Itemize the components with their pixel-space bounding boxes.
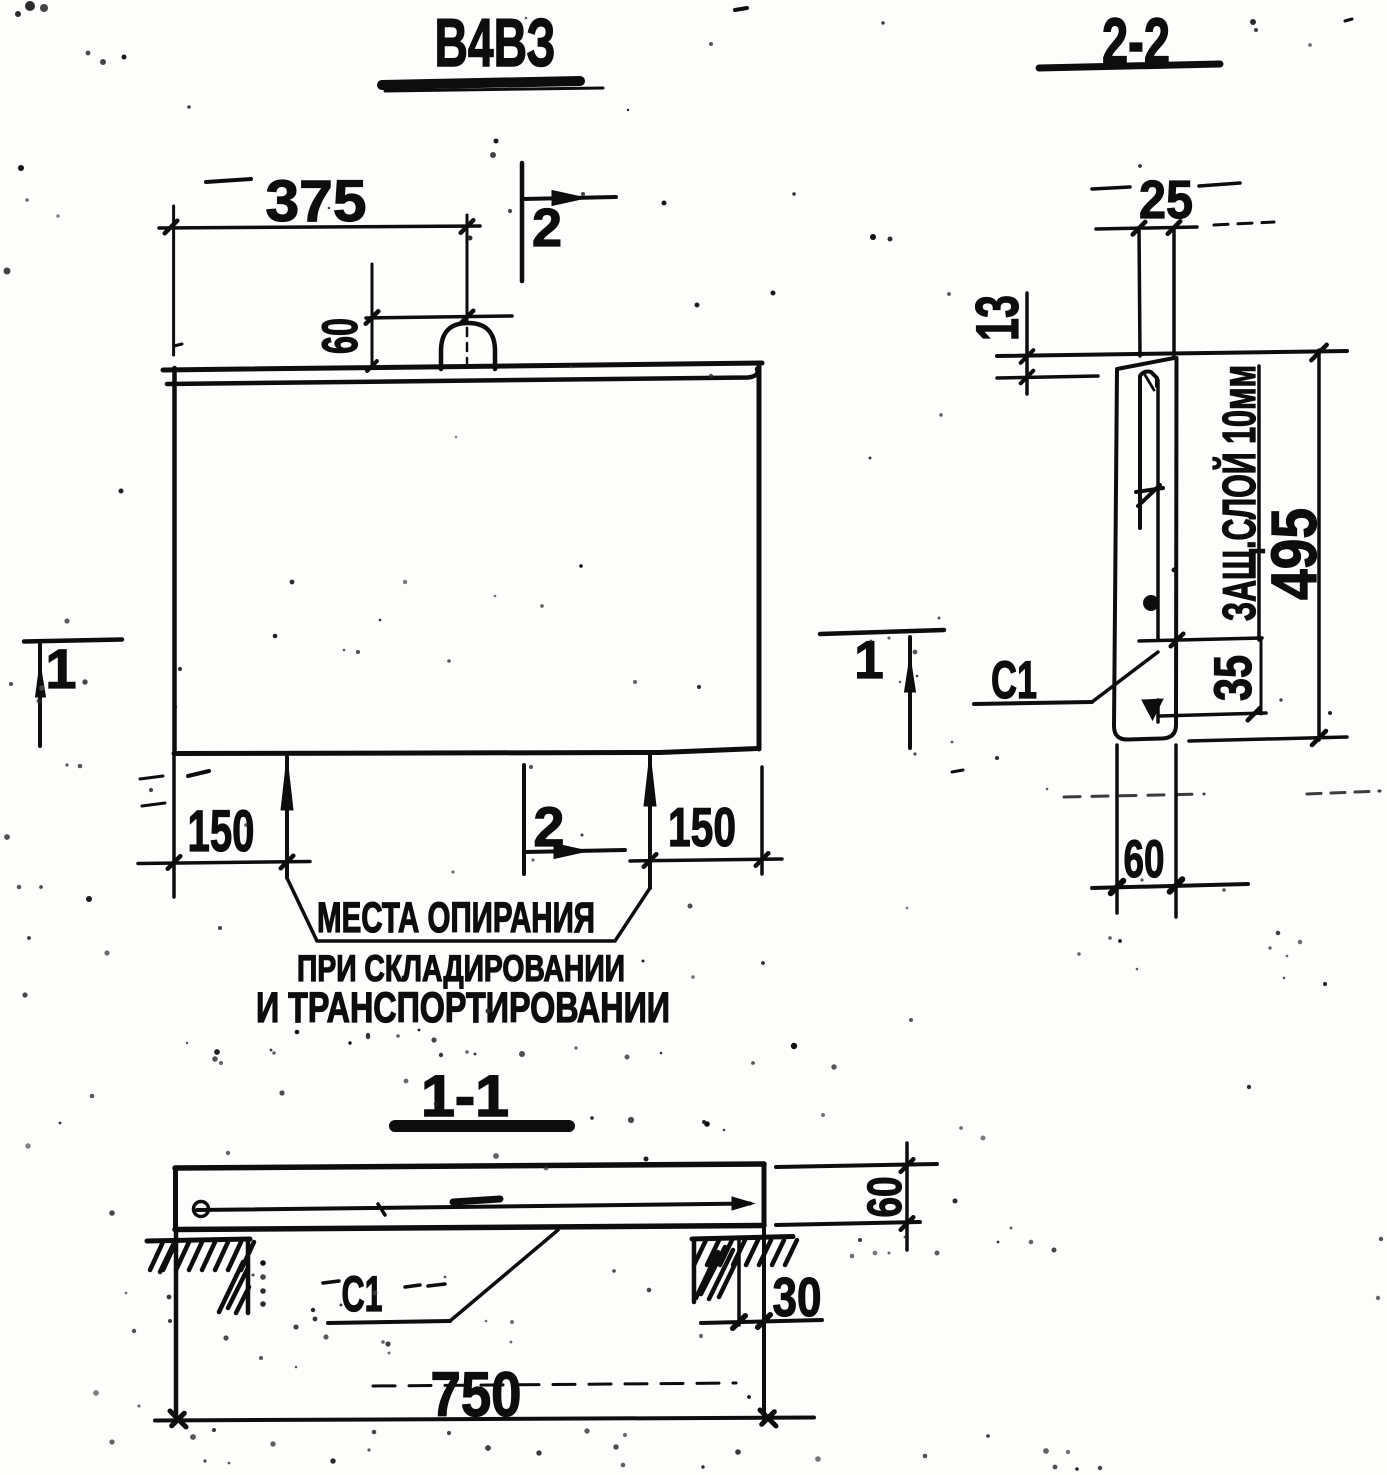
svg-text:1: 1 (45, 637, 76, 700)
svg-text:МЕСТА ОПИРАНИЯ: МЕСТА ОПИРАНИЯ (317, 894, 595, 942)
svg-text:2: 2 (533, 795, 564, 858)
svg-text:И ТРАНСПОРТИРОВАНИИ: И ТРАНСПОРТИРОВАНИИ (256, 984, 670, 1032)
svg-text:150: 150 (668, 796, 736, 858)
svg-text:60: 60 (312, 318, 368, 354)
svg-text:В4ВЗ: В4ВЗ (435, 5, 556, 81)
svg-text:30: 30 (773, 1266, 822, 1328)
svg-text:ПРИ СКЛАДИРОВАНИИ: ПРИ СКЛАДИРОВАНИИ (297, 948, 625, 989)
svg-text:750: 750 (431, 1360, 522, 1430)
svg-text:35: 35 (1204, 655, 1263, 701)
svg-text:150: 150 (188, 799, 255, 864)
svg-text:1: 1 (854, 631, 883, 690)
svg-text:1-1: 1-1 (421, 1064, 509, 1129)
svg-text:60: 60 (1124, 830, 1165, 889)
svg-text:2: 2 (532, 198, 562, 258)
svg-text:60: 60 (859, 1177, 912, 1218)
svg-text:375: 375 (266, 169, 367, 234)
svg-text:13: 13 (964, 295, 1031, 341)
